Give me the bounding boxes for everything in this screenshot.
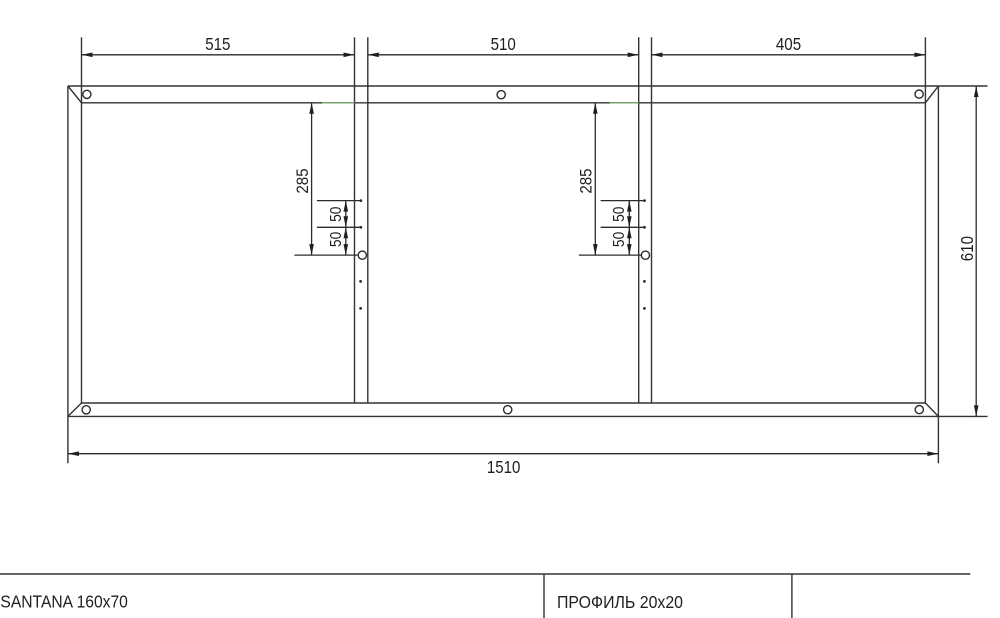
svg-text:SANTANA 160x70: SANTANA 160x70: [0, 592, 128, 612]
svg-text:610: 610: [957, 236, 977, 261]
svg-text:510: 510: [491, 34, 516, 54]
svg-text:1510: 1510: [487, 457, 521, 477]
svg-text:50: 50: [328, 206, 345, 222]
svg-text:405: 405: [776, 34, 801, 54]
svg-text:ПРОФИЛЬ 20x20: ПРОФИЛЬ 20x20: [557, 592, 683, 612]
svg-text:50: 50: [328, 231, 345, 247]
svg-text:50: 50: [611, 231, 628, 247]
svg-text:515: 515: [205, 34, 230, 54]
svg-text:285: 285: [577, 168, 596, 193]
svg-text:50: 50: [611, 206, 628, 222]
svg-text:285: 285: [293, 168, 312, 193]
